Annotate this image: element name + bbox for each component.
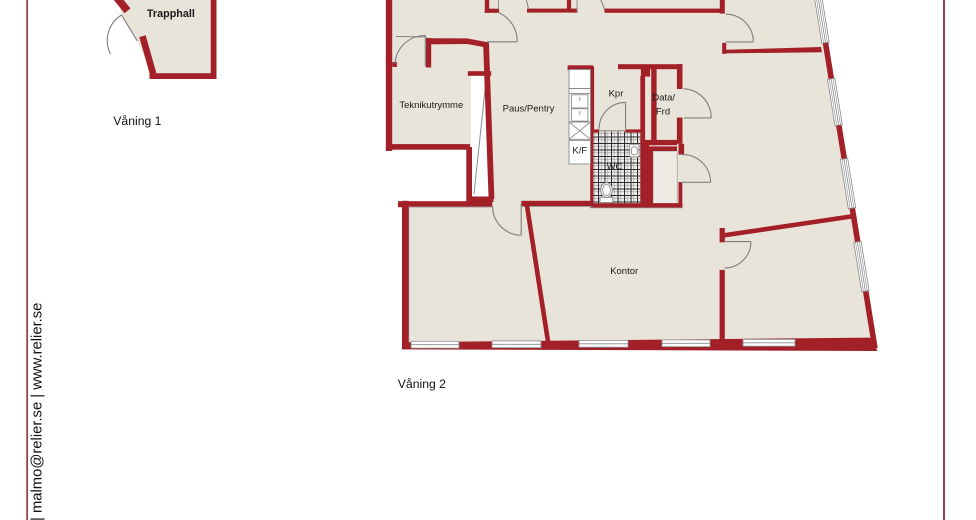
svg-text:Teknikutrymme: Teknikutrymme bbox=[399, 100, 463, 111]
svg-text:Kpr: Kpr bbox=[609, 88, 624, 99]
svg-text:Trapphall: Trapphall bbox=[147, 8, 195, 20]
svg-text:Paus/Pentry: Paus/Pentry bbox=[503, 104, 555, 115]
svg-text:| malmo@relier.se | www.relier: | malmo@relier.se | www.relier.se bbox=[30, 303, 46, 520]
svg-text:Frd: Frd bbox=[656, 107, 670, 118]
svg-text:Kontor: Kontor bbox=[610, 266, 638, 277]
svg-text:Våning 1: Våning 1 bbox=[113, 114, 161, 128]
svg-text:Data/: Data/ bbox=[652, 92, 675, 103]
svg-text:WC: WC bbox=[607, 161, 623, 171]
svg-text:Våning 2: Våning 2 bbox=[398, 377, 446, 391]
svg-text:K/F: K/F bbox=[572, 145, 587, 156]
